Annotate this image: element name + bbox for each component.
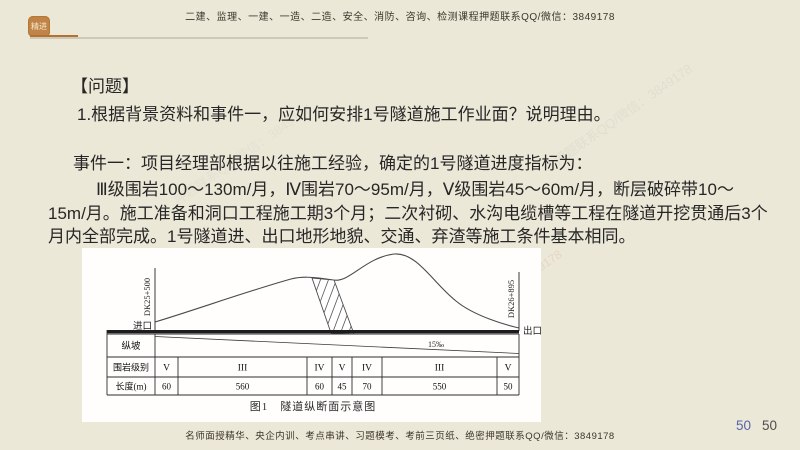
rock-grade-cell: V bbox=[339, 364, 346, 374]
question-text: 1.根据背景资料和事件一，应如何安排1号隧道施工作业面？说明理由。 bbox=[77, 100, 611, 125]
top-banner-text: 二建、监理、一建、一造、二造、安全、消防、咨询、检测课程押题联系QQ/微信：38… bbox=[0, 8, 800, 23]
table-row-header: 围岩级别 bbox=[113, 362, 149, 373]
length-cell: 45 bbox=[338, 382, 348, 392]
table-row-header: 长度(m) bbox=[116, 381, 147, 392]
rock-grade-cell: IV bbox=[314, 364, 324, 374]
gradient-label: 15‰ bbox=[428, 340, 444, 349]
gradient-line bbox=[155, 337, 519, 354]
rock-grade-cell: V bbox=[505, 364, 512, 374]
footer-banner-text: 名师面授精华、央企内训、考点串讲、习题模考、考前三页纸、绝密押题联系QQ/微信：… bbox=[0, 428, 800, 442]
tunnel-alignment-line bbox=[107, 330, 519, 333]
tunnel-profile-svg: DK25+500 DK26+895 进口 出口 bbox=[82, 248, 541, 422]
event-paragraph-line: 事件一：项目经理部根据以往施工经验，确定的1号隧道进度指标为： bbox=[73, 149, 592, 174]
figure-caption: 图1 隧道纵断面示意图 bbox=[250, 399, 377, 413]
logo-underline-rule bbox=[30, 37, 368, 39]
brand-logo-text: 精进 bbox=[31, 23, 47, 31]
rock-grade-cell: III bbox=[435, 364, 445, 374]
length-cell: 50 bbox=[504, 382, 514, 392]
length-cell: 550 bbox=[433, 382, 447, 392]
rock-grade-cell: IV bbox=[362, 364, 372, 374]
page-number-secondary: 50 bbox=[762, 418, 777, 433]
question-heading: 【问题】 bbox=[71, 72, 139, 97]
rock-grade-cell: V bbox=[163, 364, 170, 374]
event-paragraph-line: 月内全部完成。1号隧道进、出口地形地貌、交通、弃渣等施工条件基本相同。 bbox=[48, 222, 635, 247]
rock-grade-cell: III bbox=[238, 364, 248, 374]
length-cell: 560 bbox=[236, 382, 250, 392]
length-cell: 70 bbox=[363, 382, 373, 392]
event-paragraph-line: Ⅲ级围岩100～130m/月，Ⅳ围岩70～95m/月，Ⅴ级围岩45～60m/月，… bbox=[96, 175, 734, 200]
tunnel-profile-figure: DK25+500 DK26+895 进口 出口 bbox=[82, 248, 541, 422]
exit-chainage-label: DK26+895 bbox=[506, 280, 516, 318]
length-cell: 60 bbox=[315, 382, 325, 392]
page-number-primary: 50 bbox=[736, 418, 751, 433]
entrance-chainage-label: DK25+500 bbox=[142, 278, 152, 316]
table-row-header: 纵坡 bbox=[121, 340, 141, 352]
exit-label: 出口 bbox=[523, 325, 541, 337]
event-paragraph-line: 15m/月。施工准备和洞口工程施工期3个月；二次衬砌、水沟电缆槽等工程在隧道开挖… bbox=[48, 199, 768, 224]
slide: 精进 二建、监理、一建、一造、二造、安全、消防、咨询、检测课程押题联系QQ/微信… bbox=[0, 0, 800, 450]
length-cell: 60 bbox=[162, 382, 172, 392]
